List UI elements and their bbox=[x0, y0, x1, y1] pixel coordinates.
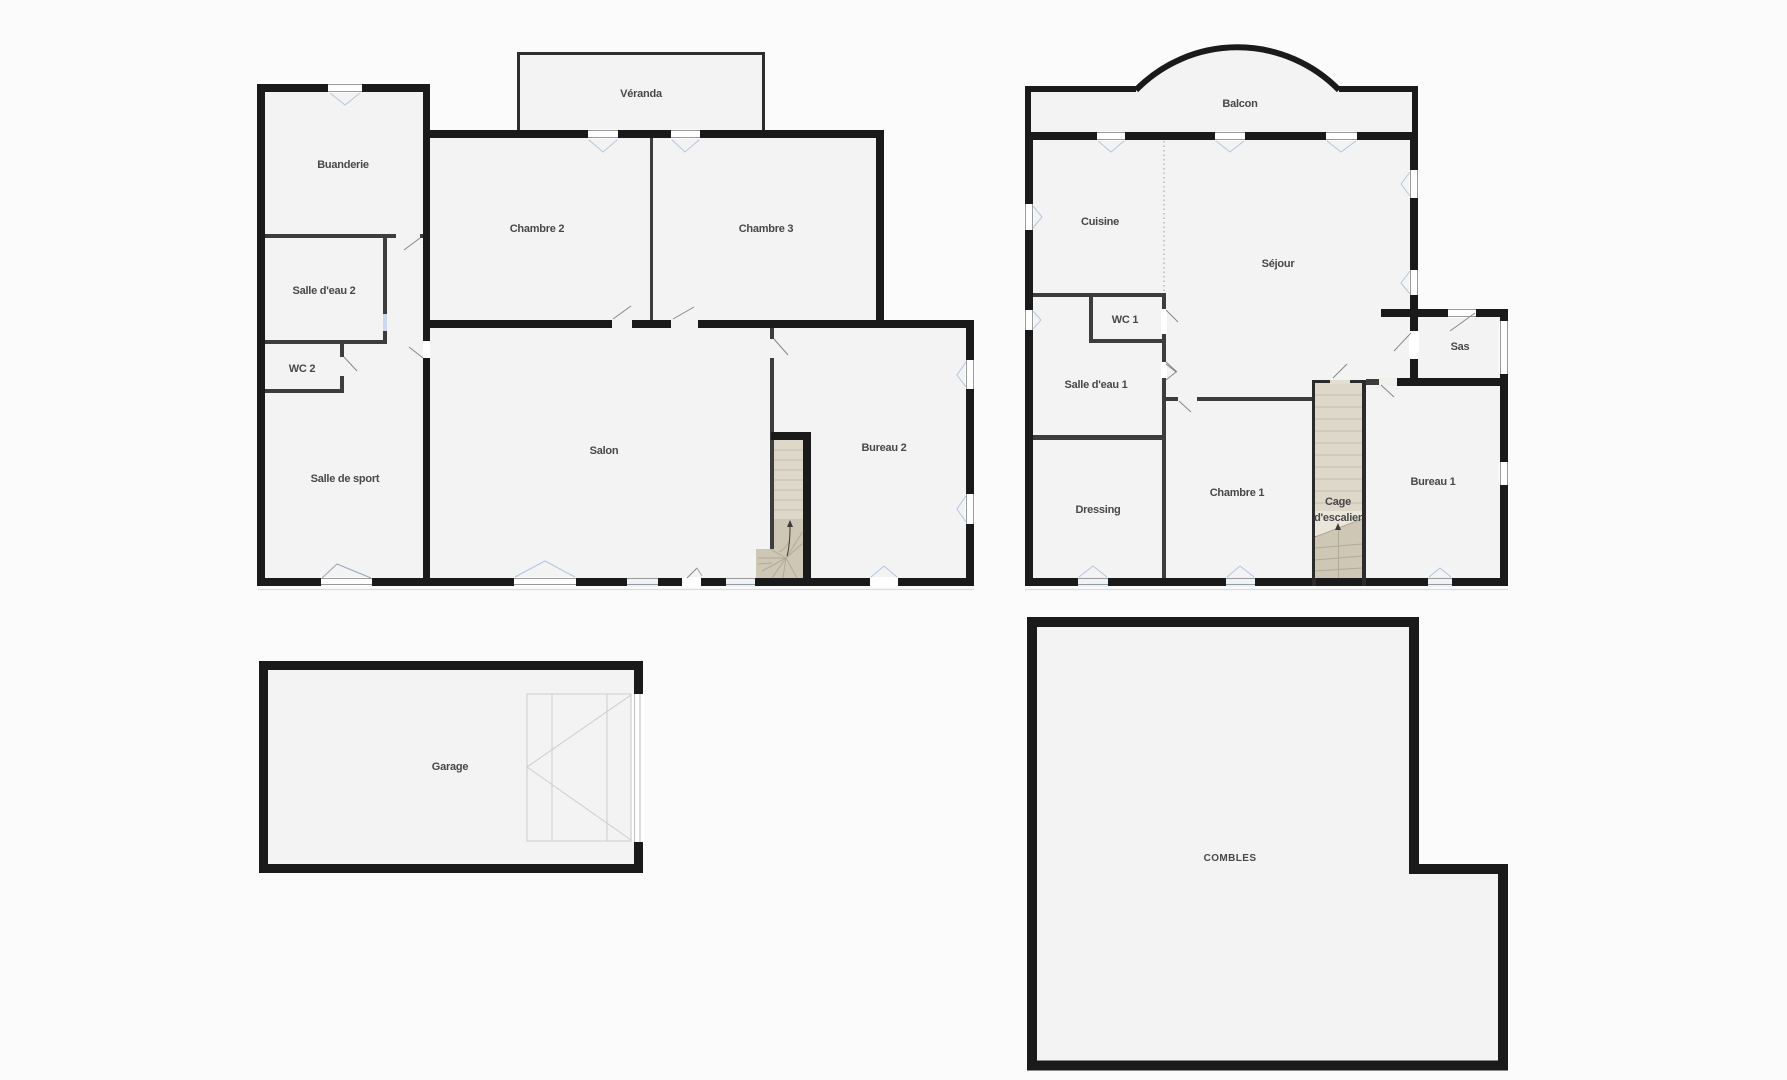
svg-text:Bureau 1: Bureau 1 bbox=[1410, 476, 1455, 488]
svg-text:Chambre 1: Chambre 1 bbox=[1210, 487, 1265, 499]
svg-text:Cage: Cage bbox=[1325, 496, 1351, 508]
svg-text:Salle d'eau 1: Salle d'eau 1 bbox=[1065, 379, 1128, 391]
svg-text:Bureau 2: Bureau 2 bbox=[861, 442, 906, 454]
svg-text:Salon: Salon bbox=[590, 445, 619, 457]
svg-text:Séjour: Séjour bbox=[1262, 258, 1296, 270]
svg-text:Chambre 3: Chambre 3 bbox=[739, 223, 794, 235]
svg-text:d'escalier: d'escalier bbox=[1314, 512, 1363, 524]
svg-text:Chambre 2: Chambre 2 bbox=[510, 223, 565, 235]
svg-text:Salle d'eau 2: Salle d'eau 2 bbox=[293, 285, 356, 297]
svg-text:Sas: Sas bbox=[1451, 341, 1470, 353]
svg-text:Buanderie: Buanderie bbox=[317, 159, 369, 171]
svg-text:Véranda: Véranda bbox=[620, 88, 663, 100]
svg-text:Salle de sport: Salle de sport bbox=[311, 473, 380, 485]
svg-text:Balcon: Balcon bbox=[1222, 98, 1258, 110]
svg-text:Dressing: Dressing bbox=[1075, 504, 1120, 516]
svg-text:COMBLES: COMBLES bbox=[1204, 853, 1257, 864]
svg-text:WC 2: WC 2 bbox=[289, 363, 316, 375]
svg-text:Garage: Garage bbox=[432, 761, 469, 773]
svg-text:WC 1: WC 1 bbox=[1112, 314, 1139, 326]
svg-text:Cuisine: Cuisine bbox=[1081, 216, 1119, 228]
